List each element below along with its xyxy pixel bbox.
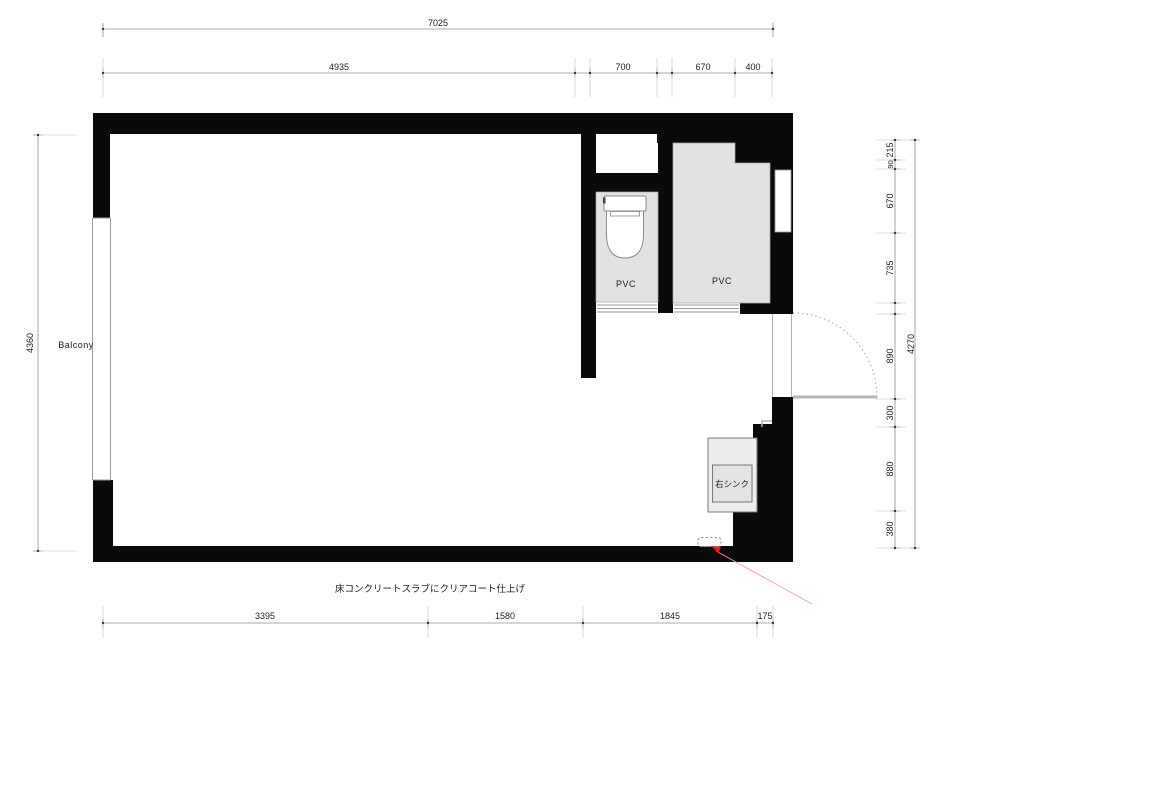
floor-plan-canvas: 右シンク Balcony PVC PVC 床コンクリートスラブにクリアコート仕上… <box>0 0 1152 792</box>
dim-right-seg-6: 300 <box>885 405 895 420</box>
entry-door <box>773 313 878 397</box>
dim-bottom-seg-1: 3395 <box>255 611 275 621</box>
dim-top-seg-1: 4935 <box>329 62 349 72</box>
dim-right-seg-7: 880 <box>885 461 895 476</box>
wall-right-step <box>753 424 793 512</box>
dim-dots-top <box>102 28 774 74</box>
wall-interior-vertical-2 <box>658 134 673 313</box>
toilet-flush-button <box>603 198 606 204</box>
dim-bottom-seg-4: 175 <box>757 611 772 621</box>
toilet-seat-slot <box>611 212 640 217</box>
balcony-label: Balcony <box>58 340 94 350</box>
wall-bottom <box>93 546 793 562</box>
dim-right-seg-2: 90 <box>886 160 895 168</box>
shower-room-label: PVC <box>712 276 732 286</box>
drain-marker <box>698 538 721 547</box>
wall-interior-vertical-1 <box>581 134 596 378</box>
toilet-room-label: PVC <box>616 279 636 289</box>
wall-right-notch-block <box>735 143 793 163</box>
wall-left-upper <box>93 134 110 218</box>
dim-top-seg-4: 400 <box>745 62 760 72</box>
wall-top-inner-strip <box>657 134 793 143</box>
dim-top-overall-value: 7025 <box>428 18 448 28</box>
dim-bottom-seg-2: 1580 <box>495 611 515 621</box>
balcony-window-frame <box>93 218 111 480</box>
balcony-window <box>93 218 111 480</box>
dim-left-overall-value: 4360 <box>25 333 35 353</box>
wall-right-below-door <box>772 397 793 424</box>
dim-top-seg-3: 670 <box>695 62 710 72</box>
wall-right-bottom-block <box>733 512 793 562</box>
dim-right-seg-1: 215 <box>885 142 895 157</box>
door-frame-lines <box>773 314 792 397</box>
dim-right-seg-8: 380 <box>885 521 895 536</box>
wall-shaft-inset <box>775 170 791 232</box>
toilet-bowl <box>607 211 644 258</box>
sink-label: 右シンク <box>715 479 749 489</box>
wall-under-shower-room <box>740 303 772 314</box>
toilet-icon <box>603 196 646 258</box>
dim-bottom-seg-3: 1845 <box>660 611 680 621</box>
dim-right-overall-value: 4270 <box>906 334 916 354</box>
dim-top-seg-2: 700 <box>615 62 630 72</box>
floor-finish-note: 床コンクリートスラブにクリアコート仕上げ <box>335 583 526 595</box>
dim-right-seg-3: 670 <box>885 193 895 208</box>
shower-threshold <box>674 305 739 312</box>
dim-top <box>103 23 773 97</box>
toilet-threshold <box>597 305 657 312</box>
dim-right-seg-4: 735 <box>885 260 895 275</box>
wall-top <box>93 113 793 134</box>
toilet-tank <box>604 196 646 211</box>
door-swing-arc <box>793 313 877 397</box>
wall-right-mid <box>770 232 793 314</box>
wall-interior-horizontal <box>581 173 673 192</box>
floor-plan-drawing: 右シンク Balcony PVC PVC 床コンクリートスラブにクリアコート仕上… <box>0 0 1152 792</box>
dim-right-seg-5: 890 <box>885 348 895 363</box>
